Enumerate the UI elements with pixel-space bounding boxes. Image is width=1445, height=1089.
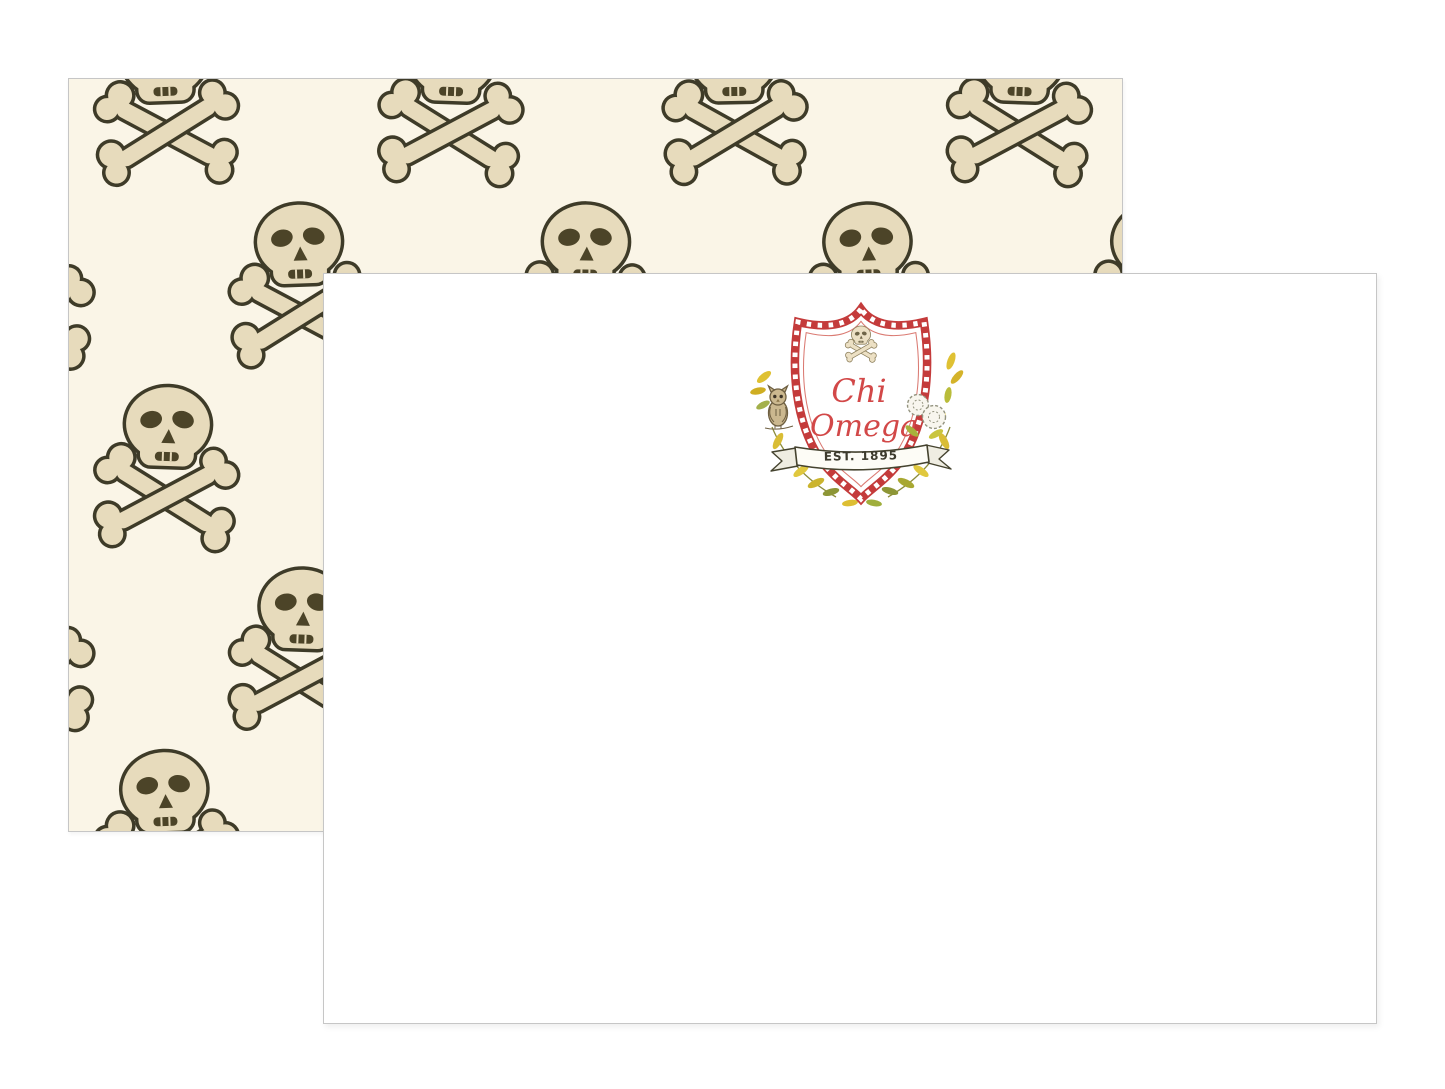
chi-omega-crest: Chi Omega — [738, 299, 984, 513]
owl-icon — [765, 386, 793, 429]
crest-name-line1: Chi — [831, 372, 886, 410]
notecard-front: Chi Omega — [323, 273, 1377, 1024]
stationery-product-photo: Chi Omega — [0, 0, 1445, 1089]
crest-banner-text: EST. 1895 — [824, 448, 899, 463]
crest-name-line2: Omega — [810, 409, 918, 444]
